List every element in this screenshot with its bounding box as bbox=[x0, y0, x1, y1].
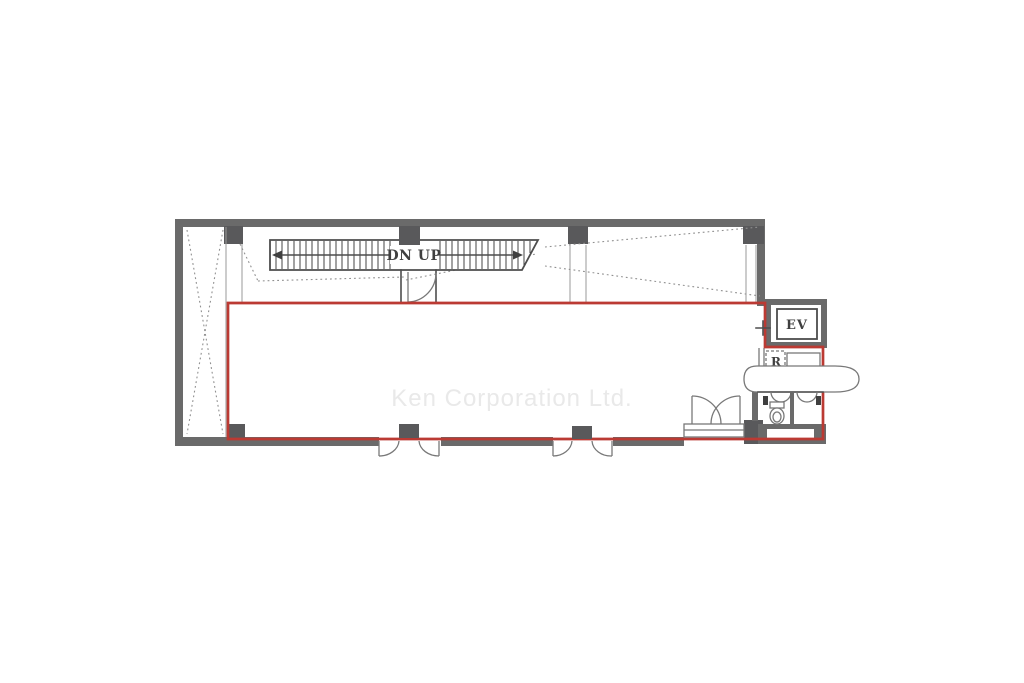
stall-door-arc bbox=[771, 392, 791, 402]
vestibule-double-door bbox=[684, 396, 744, 437]
door-center-post bbox=[399, 424, 419, 438]
door-center-post bbox=[572, 426, 592, 439]
void-area bbox=[187, 230, 223, 434]
stall-door-post bbox=[816, 396, 821, 405]
elevator-label: EV bbox=[786, 318, 808, 333]
floor-plan: Ken Corporation Ltd. bbox=[0, 0, 1024, 683]
column bbox=[228, 424, 245, 438]
staircase: DN UP bbox=[270, 226, 538, 303]
stall-divider-wall bbox=[790, 392, 794, 424]
door-swing-arc bbox=[408, 273, 436, 302]
stall-door-arc bbox=[797, 392, 817, 402]
void-cross-line bbox=[187, 230, 223, 434]
dotted-sight-line bbox=[258, 277, 404, 281]
watermark-text: Ken Corporation Ltd. bbox=[391, 385, 632, 412]
column bbox=[568, 226, 588, 244]
door-swing-arc bbox=[553, 441, 572, 456]
storefront-door-2 bbox=[553, 426, 612, 456]
vanity-counter bbox=[744, 366, 859, 392]
left-wall bbox=[175, 219, 183, 446]
door-swing-arc bbox=[379, 441, 399, 456]
dotted-sight-line bbox=[240, 244, 258, 281]
door-swing-arc bbox=[711, 396, 740, 424]
restroom-window bbox=[767, 429, 814, 438]
stall-door-post bbox=[763, 396, 768, 405]
dotted-sight-line bbox=[545, 266, 760, 296]
lease-area-outline bbox=[228, 303, 823, 439]
door-swing-arc bbox=[419, 441, 439, 456]
void-cross-line bbox=[187, 230, 223, 434]
top-wall bbox=[175, 219, 765, 227]
door-swing-arc bbox=[592, 441, 612, 456]
column bbox=[224, 226, 243, 244]
column bbox=[399, 226, 420, 245]
restroom-wall bbox=[752, 390, 758, 421]
door-swing-arc bbox=[692, 396, 721, 424]
elevator-shaft: EV bbox=[765, 299, 827, 348]
restroom-fixtures: R bbox=[744, 351, 859, 424]
toilet-tank bbox=[770, 402, 784, 408]
stair-label: DN UP bbox=[386, 248, 441, 264]
floor-plan-page: Ken Corporation Ltd. bbox=[0, 0, 1024, 683]
